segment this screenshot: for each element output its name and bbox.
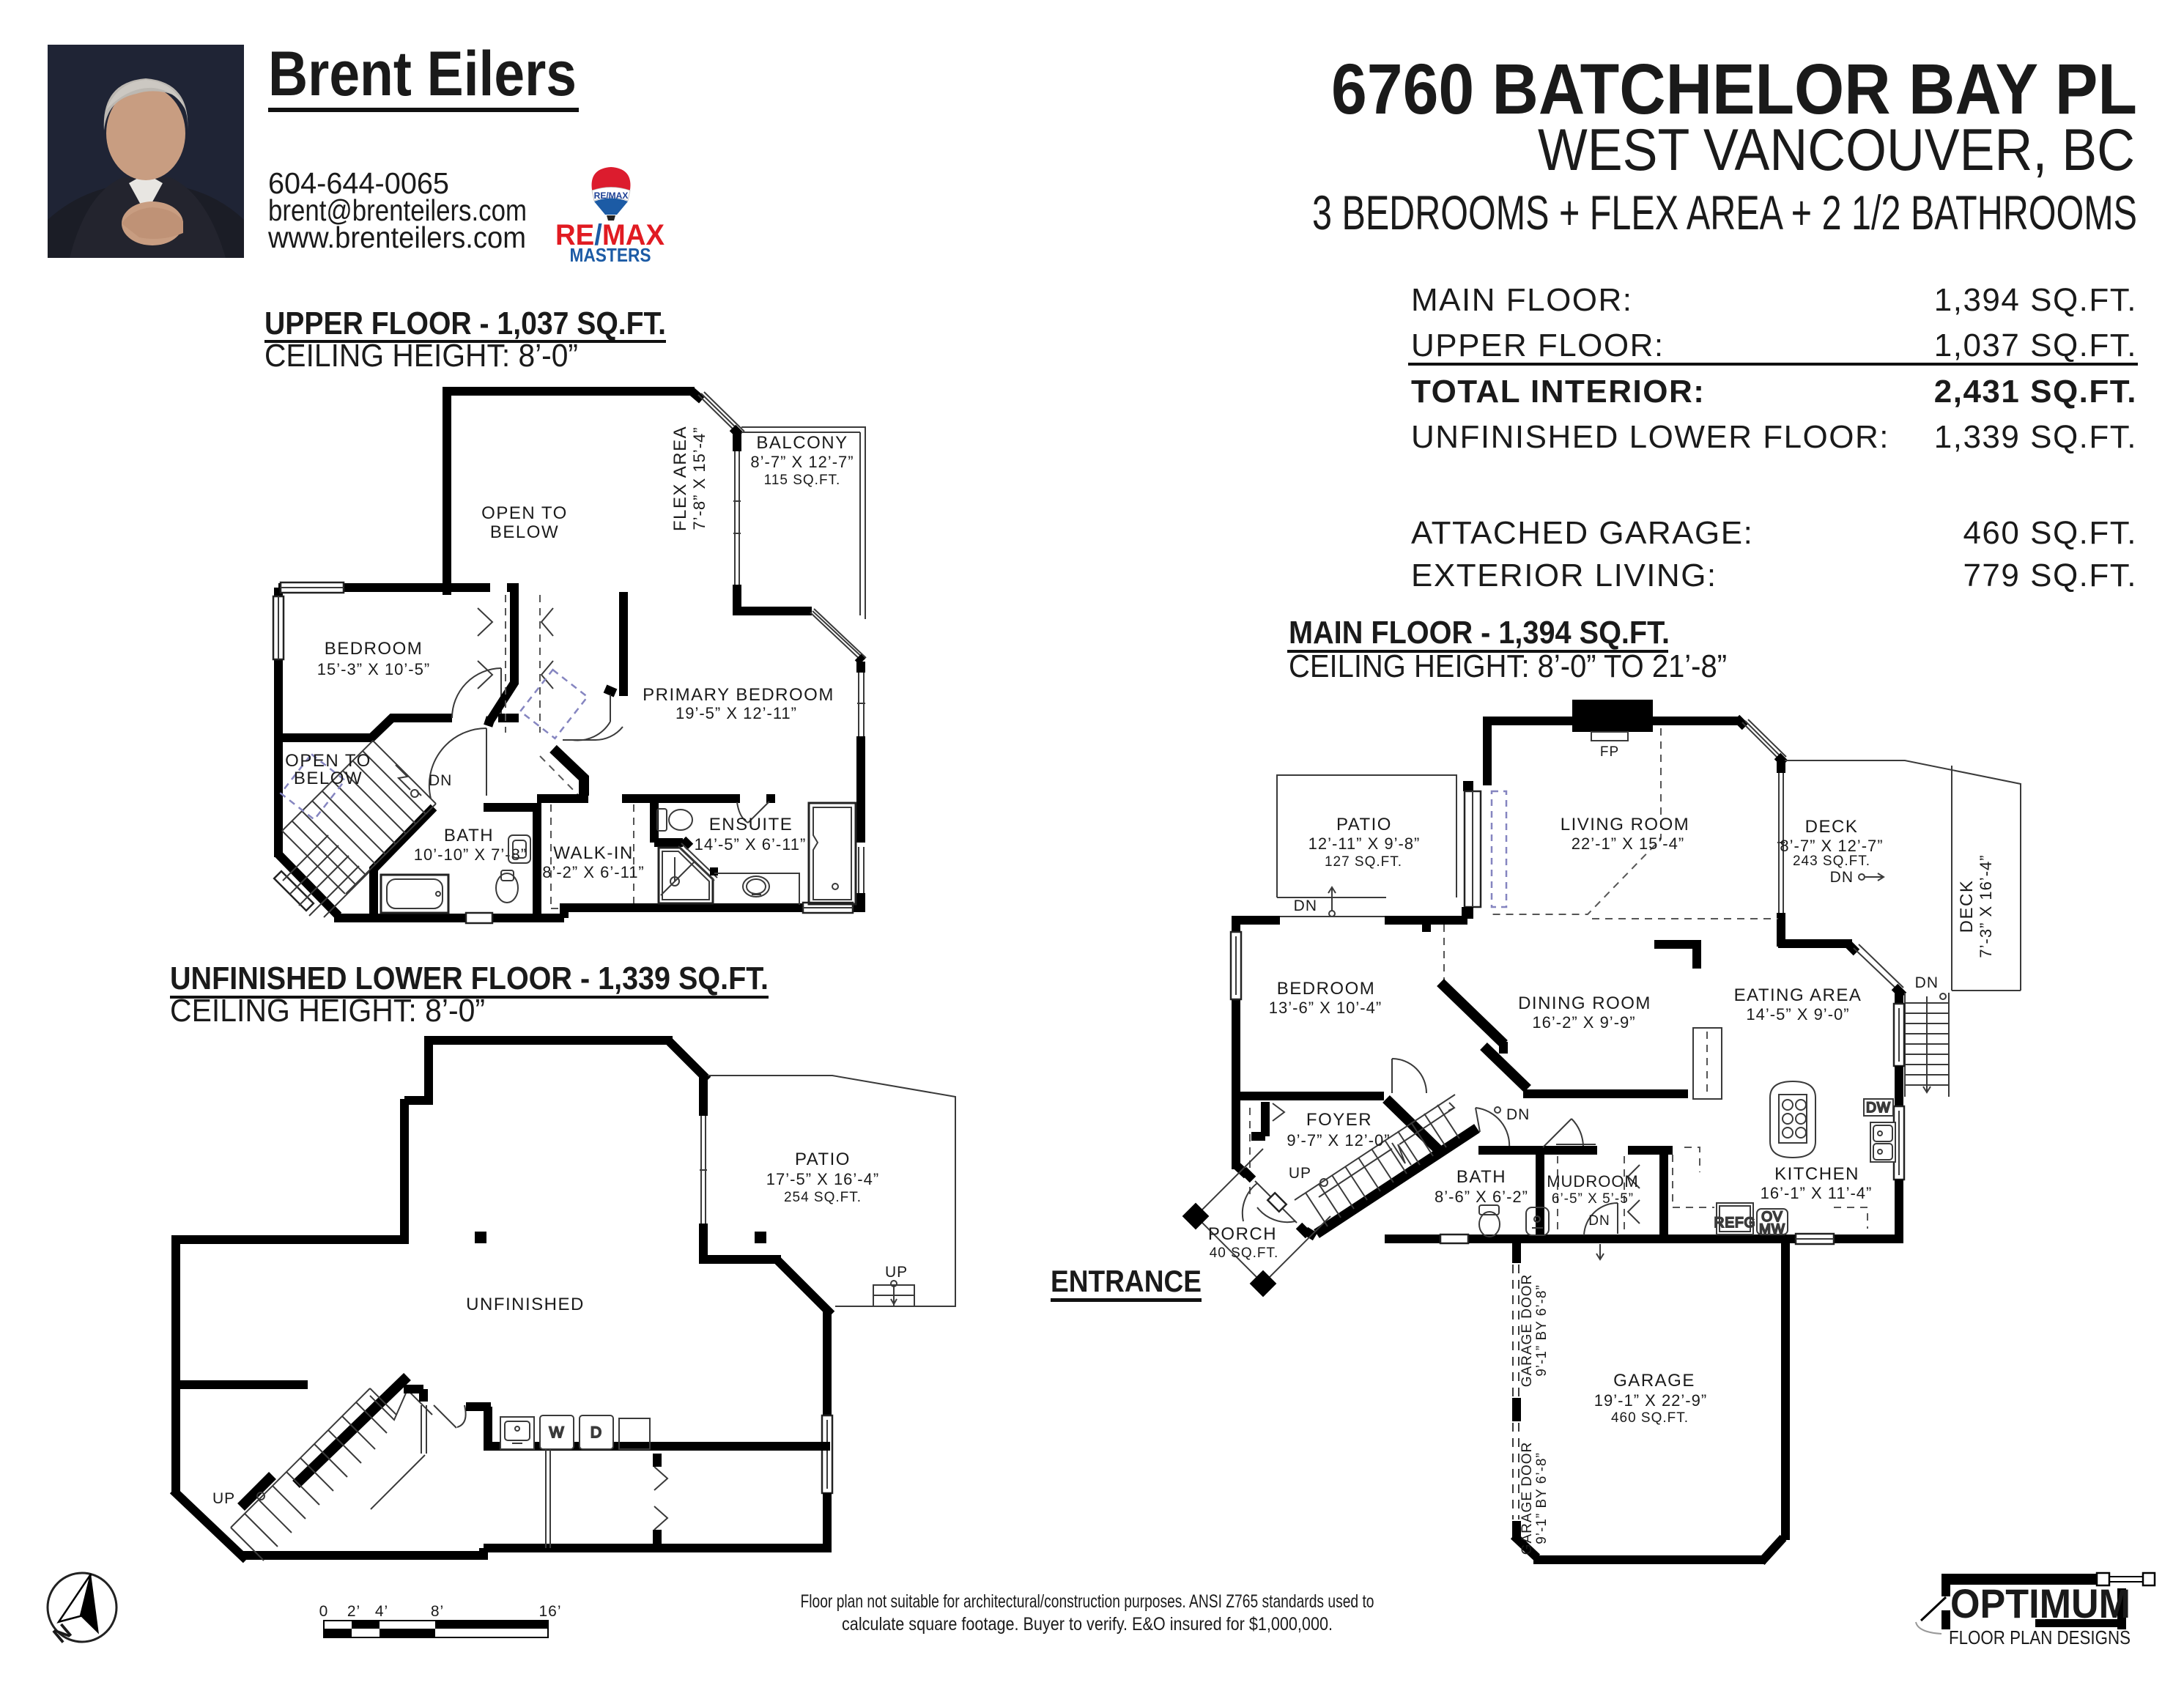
svg-text:OPTIMUM: OPTIMUM [1950,1580,2131,1626]
svg-text:TOTAL INTERIOR:: TOTAL INTERIOR: [1411,374,1705,410]
svg-text:BEDROOM: BEDROOM [1277,979,1376,999]
svg-text:8’-6” X 6’-2”: 8’-6” X 6’-2” [1435,1188,1528,1206]
svg-text:D: D [591,1424,602,1441]
svg-text:19’-1” X 22’-9”: 19’-1” X 22’-9” [1594,1391,1707,1410]
svg-text:8’-2” X 6’-11”: 8’-2” X 6’-11” [542,863,645,881]
svg-text:EXTERIOR LIVING:: EXTERIOR LIVING: [1411,558,1717,593]
svg-text:7’-3” X 16’-4”: 7’-3” X 16’-4” [1977,854,1995,958]
svg-text:19’-5” X 12’-11”: 19’-5” X 12’-11” [675,704,797,722]
svg-text:UP: UP [1289,1165,1311,1182]
svg-text:BELOW: BELOW [490,522,559,542]
svg-text:PORCH: PORCH [1208,1224,1277,1244]
svg-text:DN: DN [429,772,452,789]
svg-text:MASTERS: MASTERS [570,244,651,266]
svg-text:16’-2” X 9’-9”: 16’-2” X 9’-9” [1532,1013,1635,1032]
svg-text:127 SQ.FT.: 127 SQ.FT. [1325,854,1402,870]
svg-text:DINING ROOM: DINING ROOM [1518,993,1651,1013]
svg-text:LIVING ROOM: LIVING ROOM [1561,815,1690,834]
svg-text:OPEN TO: OPEN TO [481,503,568,523]
svg-text:WEST VANCOUVER, BC: WEST VANCOUVER, BC [1538,117,2135,183]
svg-text:ENSUITE: ENSUITE [709,815,793,834]
svg-text:EATING AREA: EATING AREA [1734,985,1862,1005]
svg-text:UNFINISHED LOWER FLOOR:: UNFINISHED LOWER FLOOR: [1411,419,1889,455]
svg-text:2,431 SQ.FT.: 2,431 SQ.FT. [1934,374,2137,410]
svg-text:6’-5” X 5’-5”: 6’-5” X 5’-5” [1552,1191,1634,1207]
svg-text:UNFINISHED: UNFINISHED [466,1295,585,1314]
svg-text:22’-1” X 15’-4”: 22’-1” X 15’-4” [1572,834,1684,853]
svg-text:FOYER: FOYER [1306,1110,1372,1130]
svg-text:Floor plan not suitable for ar: Floor plan not suitable for architectura… [801,1591,1374,1612]
svg-text:14’-5” X 9’-0”: 14’-5” X 9’-0” [1746,1005,1849,1023]
svg-text:GARAGE: GARAGE [1613,1371,1695,1391]
svg-text:9’-7” X 12’-0”: 9’-7” X 12’-0” [1287,1131,1390,1150]
svg-text:DN: DN [1588,1213,1610,1229]
svg-text:REFG: REFG [1714,1215,1756,1231]
svg-text:OPEN TO: OPEN TO [285,751,371,771]
svg-text:FLEX AREA: FLEX AREA [670,426,690,531]
svg-text:Brent Eilers: Brent Eilers [268,39,577,109]
svg-text:DN: DN [1294,897,1317,914]
svg-text:W: W [549,1424,565,1441]
svg-text:9’-1” BY 6’-8”: 9’-1” BY 6’-8” [1534,1284,1550,1377]
svg-text:KITCHEN: KITCHEN [1774,1164,1859,1184]
svg-text:PATIO: PATIO [1336,815,1392,834]
svg-text:CEILING HEIGHT: 8’-0”: CEILING HEIGHT: 8’-0” [170,993,485,1029]
svg-text:MAIN FLOOR - 1,394 SQ.FT.: MAIN FLOOR - 1,394 SQ.FT. [1289,615,1670,651]
svg-text:8’-7” X 12’-7”: 8’-7” X 12’-7” [750,453,854,471]
svg-text:243 SQ.FT.: 243 SQ.FT. [1793,854,1870,869]
svg-text:DECK: DECK [1957,880,1977,933]
svg-text:8’: 8’ [431,1603,444,1620]
svg-text:UNFINISHED LOWER FLOOR - 1,339: UNFINISHED LOWER FLOOR - 1,339 SQ.FT. [170,960,769,996]
svg-text:MUDROOM: MUDROOM [1547,1172,1639,1191]
svg-text:MAIN FLOOR:: MAIN FLOOR: [1411,282,1633,318]
svg-text:16’: 16’ [538,1603,561,1620]
svg-text:DN: DN [1506,1106,1530,1123]
svg-text:BALCONY: BALCONY [756,433,848,453]
svg-text:15’-3” X 10’-5”: 15’-3” X 10’-5” [317,660,430,678]
svg-text:CEILING HEIGHT: 8’-0”: CEILING HEIGHT: 8’-0” [264,338,578,374]
svg-text:8’-7” X 12’-7”: 8’-7” X 12’-7” [1780,837,1883,855]
svg-text:460 SQ.FT.: 460 SQ.FT. [1611,1410,1689,1426]
svg-text:FP: FP [1600,744,1619,760]
svg-text:UPPER FLOOR - 1,037 SQ.FT.: UPPER FLOOR - 1,037 SQ.FT. [264,306,666,341]
svg-text:FLOOR PLAN DESIGNS: FLOOR PLAN DESIGNS [1949,1626,2131,1648]
svg-text:16’-1” X 11’-4”: 16’-1” X 11’-4” [1761,1184,1873,1202]
svg-text:BELOW: BELOW [294,769,363,788]
svg-text:UP: UP [212,1490,235,1507]
svg-text:40 SQ.FT.: 40 SQ.FT. [1210,1245,1279,1261]
svg-text:14’-5” X 6’-11”: 14’-5” X 6’-11” [695,835,807,854]
svg-text:GARAGE DOOR: GARAGE DOOR [1519,1442,1535,1555]
svg-text:779 SQ.FT.: 779 SQ.FT. [1963,558,2137,593]
svg-text:BATH: BATH [1456,1167,1506,1187]
svg-text:460 SQ.FT.: 460 SQ.FT. [1963,515,2137,551]
svg-text:BEDROOM: BEDROOM [325,639,423,659]
svg-text:DW: DW [1866,1100,1891,1116]
svg-text:DN: DN [1830,869,1854,886]
svg-text:1,394 SQ.FT.: 1,394 SQ.FT. [1934,282,2137,318]
svg-text:9’-1” BY 6’-8”: 9’-1” BY 6’-8” [1534,1452,1550,1544]
svg-text:2’: 2’ [347,1603,360,1620]
svg-text:BATH: BATH [444,826,494,845]
svg-text:0: 0 [319,1603,329,1620]
svg-text:12’-11” X 9’-8”: 12’-11” X 9’-8” [1308,834,1421,853]
svg-text:PATIO: PATIO [795,1150,851,1169]
svg-text:7’-8” X 15’-4”: 7’-8” X 15’-4” [690,426,708,530]
svg-text:1,037 SQ.FT.: 1,037 SQ.FT. [1934,327,2137,363]
svg-text:GARAGE DOOR: GARAGE DOOR [1519,1274,1535,1388]
svg-text:13’-6” X 10’-4”: 13’-6” X 10’-4” [1269,999,1382,1017]
svg-text:calculate square footage. Buye: calculate square footage. Buyer to verif… [842,1614,1333,1635]
svg-text:DN: DN [1915,974,1939,991]
svg-text:UPPER FLOOR:: UPPER FLOOR: [1411,327,1665,363]
svg-text:254 SQ.FT.: 254 SQ.FT. [784,1190,862,1205]
svg-text:CEILING HEIGHT: 8’-0” TO 21’-8: CEILING HEIGHT: 8’-0” TO 21’-8” [1289,648,1727,684]
svg-text:www.brenteilers.com: www.brenteilers.com [267,221,526,254]
svg-text:WALK-IN: WALK-IN [553,843,634,863]
svg-text:DECK: DECK [1805,817,1859,837]
svg-text:115 SQ.FT.: 115 SQ.FT. [764,473,841,488]
svg-text:1,339 SQ.FT.: 1,339 SQ.FT. [1934,419,2137,455]
svg-text:MW: MW [1759,1222,1785,1237]
svg-text:3 BEDROOMS + FLEX AREA + 2 1/2: 3 BEDROOMS + FLEX AREA + 2 1/2 BATHROOMS [1312,185,2137,240]
svg-text:4’: 4’ [375,1603,388,1620]
svg-text:ENTRANCE: ENTRANCE [1051,1264,1202,1298]
svg-text:UP: UP [885,1264,908,1281]
svg-text:17’-5” X 16’-4”: 17’-5” X 16’-4” [766,1170,879,1188]
svg-text:ATTACHED GARAGE:: ATTACHED GARAGE: [1411,515,1753,551]
svg-text:PRIMARY BEDROOM: PRIMARY BEDROOM [643,685,834,705]
